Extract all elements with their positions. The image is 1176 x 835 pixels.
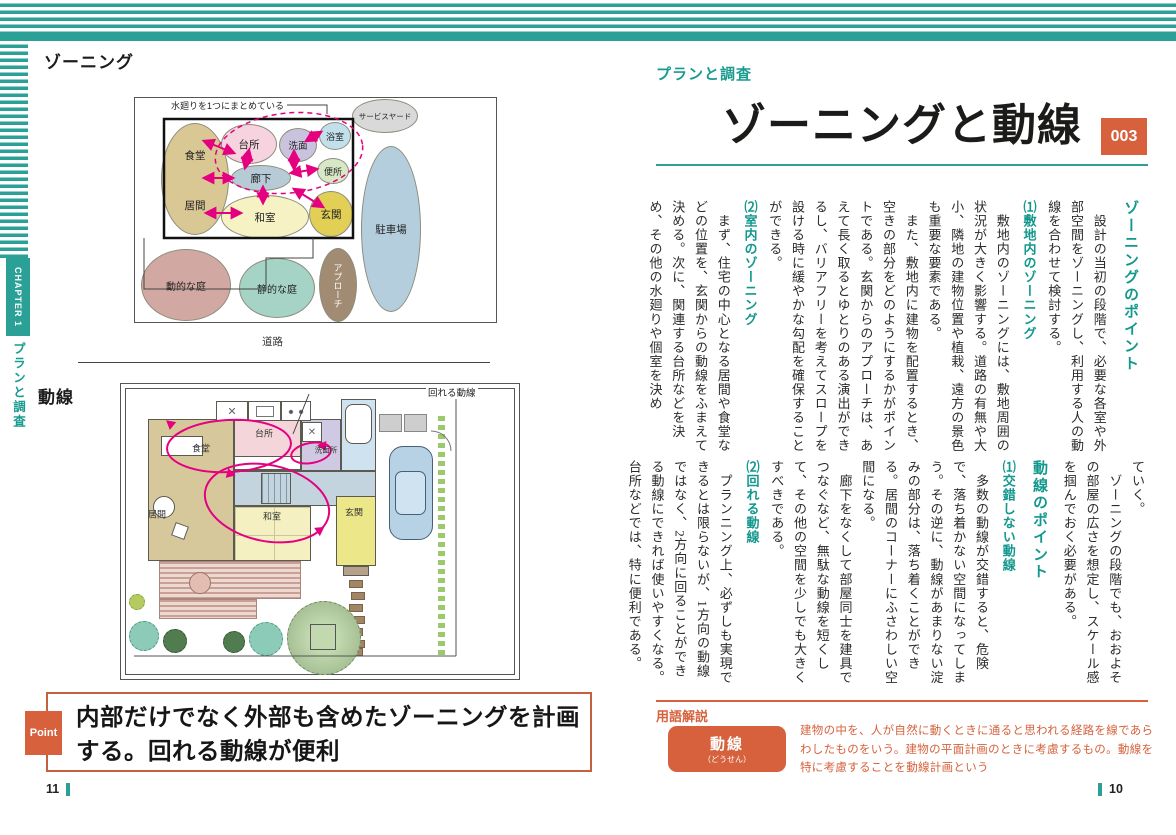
car	[389, 446, 433, 540]
car-cabin	[395, 471, 426, 515]
tree-dark	[163, 629, 187, 653]
kitchen-counter	[234, 456, 301, 470]
article-paragraph: 多数の動線が交錯すると、危険で、落ち着かない空間になってしまう。その逆に、動線が…	[856, 460, 993, 692]
top-solid-band	[0, 33, 1176, 41]
zone-label: 静的な庭	[257, 281, 297, 296]
zone-toilet: 便所	[317, 158, 349, 184]
entrance-porch	[343, 566, 369, 576]
room-label: 居間	[148, 508, 166, 521]
glossary-rule	[656, 700, 1148, 702]
chapter-badge: CHAPTER 1	[6, 258, 30, 336]
zone-parking: 駐車場	[361, 146, 421, 312]
zone-corridor: 廊下	[231, 165, 291, 191]
zone-kitchen: 台所	[221, 124, 277, 164]
article-paragraph: ていく。	[1125, 460, 1148, 692]
zone-tatami: 和室	[221, 195, 309, 239]
road-label: 道路	[262, 334, 283, 349]
sink-basin	[256, 406, 274, 417]
carport-slab	[379, 414, 402, 432]
zone-bath: 浴室	[319, 122, 351, 150]
zone-label: 洗面	[288, 138, 307, 152]
shrub	[129, 594, 145, 610]
title-rule	[656, 164, 1148, 166]
article-bottom-block: ていく。 ゾーニングの段階でも、おおよその部屋の広さを想定し、スケール感を掴んで…	[643, 460, 1148, 692]
page-number-value: 11	[46, 782, 59, 796]
zone-label: 便所	[324, 165, 342, 178]
zone-label: 動的な庭	[166, 278, 206, 293]
article-paragraph: 敷地内のゾーニングには、敷地周囲の状況が大きく影響する。道路の有無や大小、隣地の…	[922, 200, 1013, 456]
section-number-badge: 003	[1101, 118, 1147, 155]
room-label: 和室	[263, 510, 281, 523]
loop-flow-note: 回れる動線	[426, 385, 478, 399]
zone-label: 食堂	[162, 148, 228, 163]
room-label: 食堂	[192, 442, 210, 455]
tree-planter	[310, 624, 336, 650]
page-number-right: 10	[1098, 782, 1123, 796]
zone-label: 和室	[255, 210, 276, 225]
note-leader-line	[287, 105, 327, 114]
glossary-definition: 建物の中を、人が自然に動くときに通ると思われる経路を線であらわしたものをいう。建…	[800, 722, 1156, 778]
article-heading: ゾーニングのポイント	[1117, 200, 1143, 456]
zoning-diagram: 食堂 居間 台所 洗面 浴室 便所 廊下 和室 玄関 サービスヤード 駐車場 ア…	[134, 97, 497, 323]
zone-dining-living: 食堂 居間	[161, 123, 229, 235]
point-text: 内部だけでなく外部も含めたゾーニングを計画する。回れる動線が便利	[76, 700, 586, 768]
kitchen-sink-unit	[248, 401, 281, 421]
zone-washroom: 洗面	[279, 128, 317, 162]
article-subheading: ⑴敷地内のゾーニング	[1017, 200, 1040, 456]
article-subheading: ⑵回れる動線	[740, 460, 763, 692]
stepping-stone	[349, 604, 363, 612]
figure-divider-line	[78, 362, 490, 363]
stove-unit	[281, 401, 311, 421]
stepping-stone	[351, 592, 365, 600]
zone-label: 居間	[162, 198, 228, 213]
deck-table	[189, 572, 211, 594]
washing-machine: ✕	[302, 422, 322, 442]
zone-garden-static: 静的な庭	[239, 258, 315, 318]
glossary-term: 動線	[710, 733, 744, 754]
category-label: プランと調査	[656, 63, 752, 84]
deck	[159, 561, 301, 599]
tree-round	[249, 622, 283, 656]
top-stripe-band	[0, 0, 1176, 33]
page-number-left: 11	[46, 782, 70, 796]
stepping-stone	[349, 580, 363, 588]
flow-plan-diagram: ✕ ✕	[120, 383, 520, 680]
glossary-term-box: 動線 （どうせん）	[668, 726, 786, 772]
article-paragraph: 廊下をなくして部屋同士を建具でつなぐなど、無駄な動線を短くして、その他の空間を少…	[765, 460, 856, 692]
carport-slab	[404, 414, 427, 432]
zone-garden-dynamic: 動的な庭	[141, 249, 231, 321]
zone-label: 玄関	[321, 207, 342, 222]
zone-label: 台所	[239, 137, 260, 152]
zone-approach: アプローチ	[319, 248, 357, 322]
room-label: 洗面所	[315, 445, 338, 456]
stairs	[261, 473, 291, 504]
hedge	[438, 416, 445, 656]
article-subheading: ⑴交錯しない動線	[996, 460, 1019, 692]
book-spread: CHAPTER 1 プランと調査 ゾーニング 食堂 居間 台所 洗面 浴室 便所…	[0, 0, 1176, 835]
glossary-term-reading: （どうせん）	[703, 754, 751, 765]
zone-label: サービスヤード	[359, 111, 412, 122]
zone-label: アプローチ	[332, 263, 345, 308]
page-number-bar	[66, 783, 70, 796]
page-number-value: 10	[1109, 782, 1123, 796]
tree-dark	[223, 631, 245, 653]
sidebar-stripe-band	[0, 41, 28, 258]
flow-figure-caption: 動線	[38, 383, 74, 408]
closet-unit: ✕	[216, 401, 248, 421]
chapter-label: CHAPTER 1	[13, 267, 23, 327]
room-label: 玄関	[345, 506, 363, 519]
zone-service-yard: サービスヤード	[352, 99, 418, 133]
point-box: Point 内部だけでなく外部も含めたゾーニングを計画する。回れる動線が便利	[46, 692, 592, 772]
article-paragraph: まず、住宅の中心となる居間や食堂などの位置を、玄関からの動線をふまえて決める。次…	[643, 200, 734, 456]
article-heading: 動線のポイント	[1026, 460, 1052, 692]
article-paragraph: プランニング上、必ずしも実現できるとは限らないが、1方向の動線ではなく、2方向に…	[622, 460, 736, 692]
sidebar-chapter-title: プランと調査	[9, 342, 28, 462]
article-subheading: ⑵室内のゾーニング	[738, 200, 761, 456]
article-top-block: ゾーニングのポイント 設計の当初の段階で、必要な各室や外部空間をゾーニングし、利…	[643, 200, 1148, 456]
zone-entrance: 玄関	[309, 191, 353, 237]
room-label: 台所	[255, 427, 273, 440]
zoning-figure-caption: ゾーニング	[44, 48, 134, 73]
tree-round	[129, 621, 159, 651]
flow-arrow	[291, 169, 317, 173]
article-paragraph: ゾーニングの段階でも、おおよその部屋の広さを想定し、スケール感を掴んでおく必要が…	[1057, 460, 1125, 692]
water-area-note: 水廻りを1つにまとめている	[169, 99, 286, 112]
zone-label: 浴室	[326, 130, 344, 143]
deck-lower	[159, 599, 257, 619]
page-title: ゾーニングと動線	[656, 100, 1148, 153]
page-number-bar	[1098, 783, 1102, 796]
zone-label: 廊下	[251, 171, 272, 186]
glossary-section-label: 用語解説	[656, 706, 708, 725]
point-badge: Point	[25, 711, 62, 755]
zone-label: 駐車場	[375, 222, 407, 237]
article-paragraph: 設計の当初の段階で、必要な各室や外部空間をゾーニングし、利用する人の動線を合わせ…	[1042, 200, 1110, 456]
article-paragraph: また、敷地内に建物を配置するとき、空きの部分をどのようにするかがポイントである。…	[763, 200, 922, 456]
bathtub	[345, 404, 372, 444]
